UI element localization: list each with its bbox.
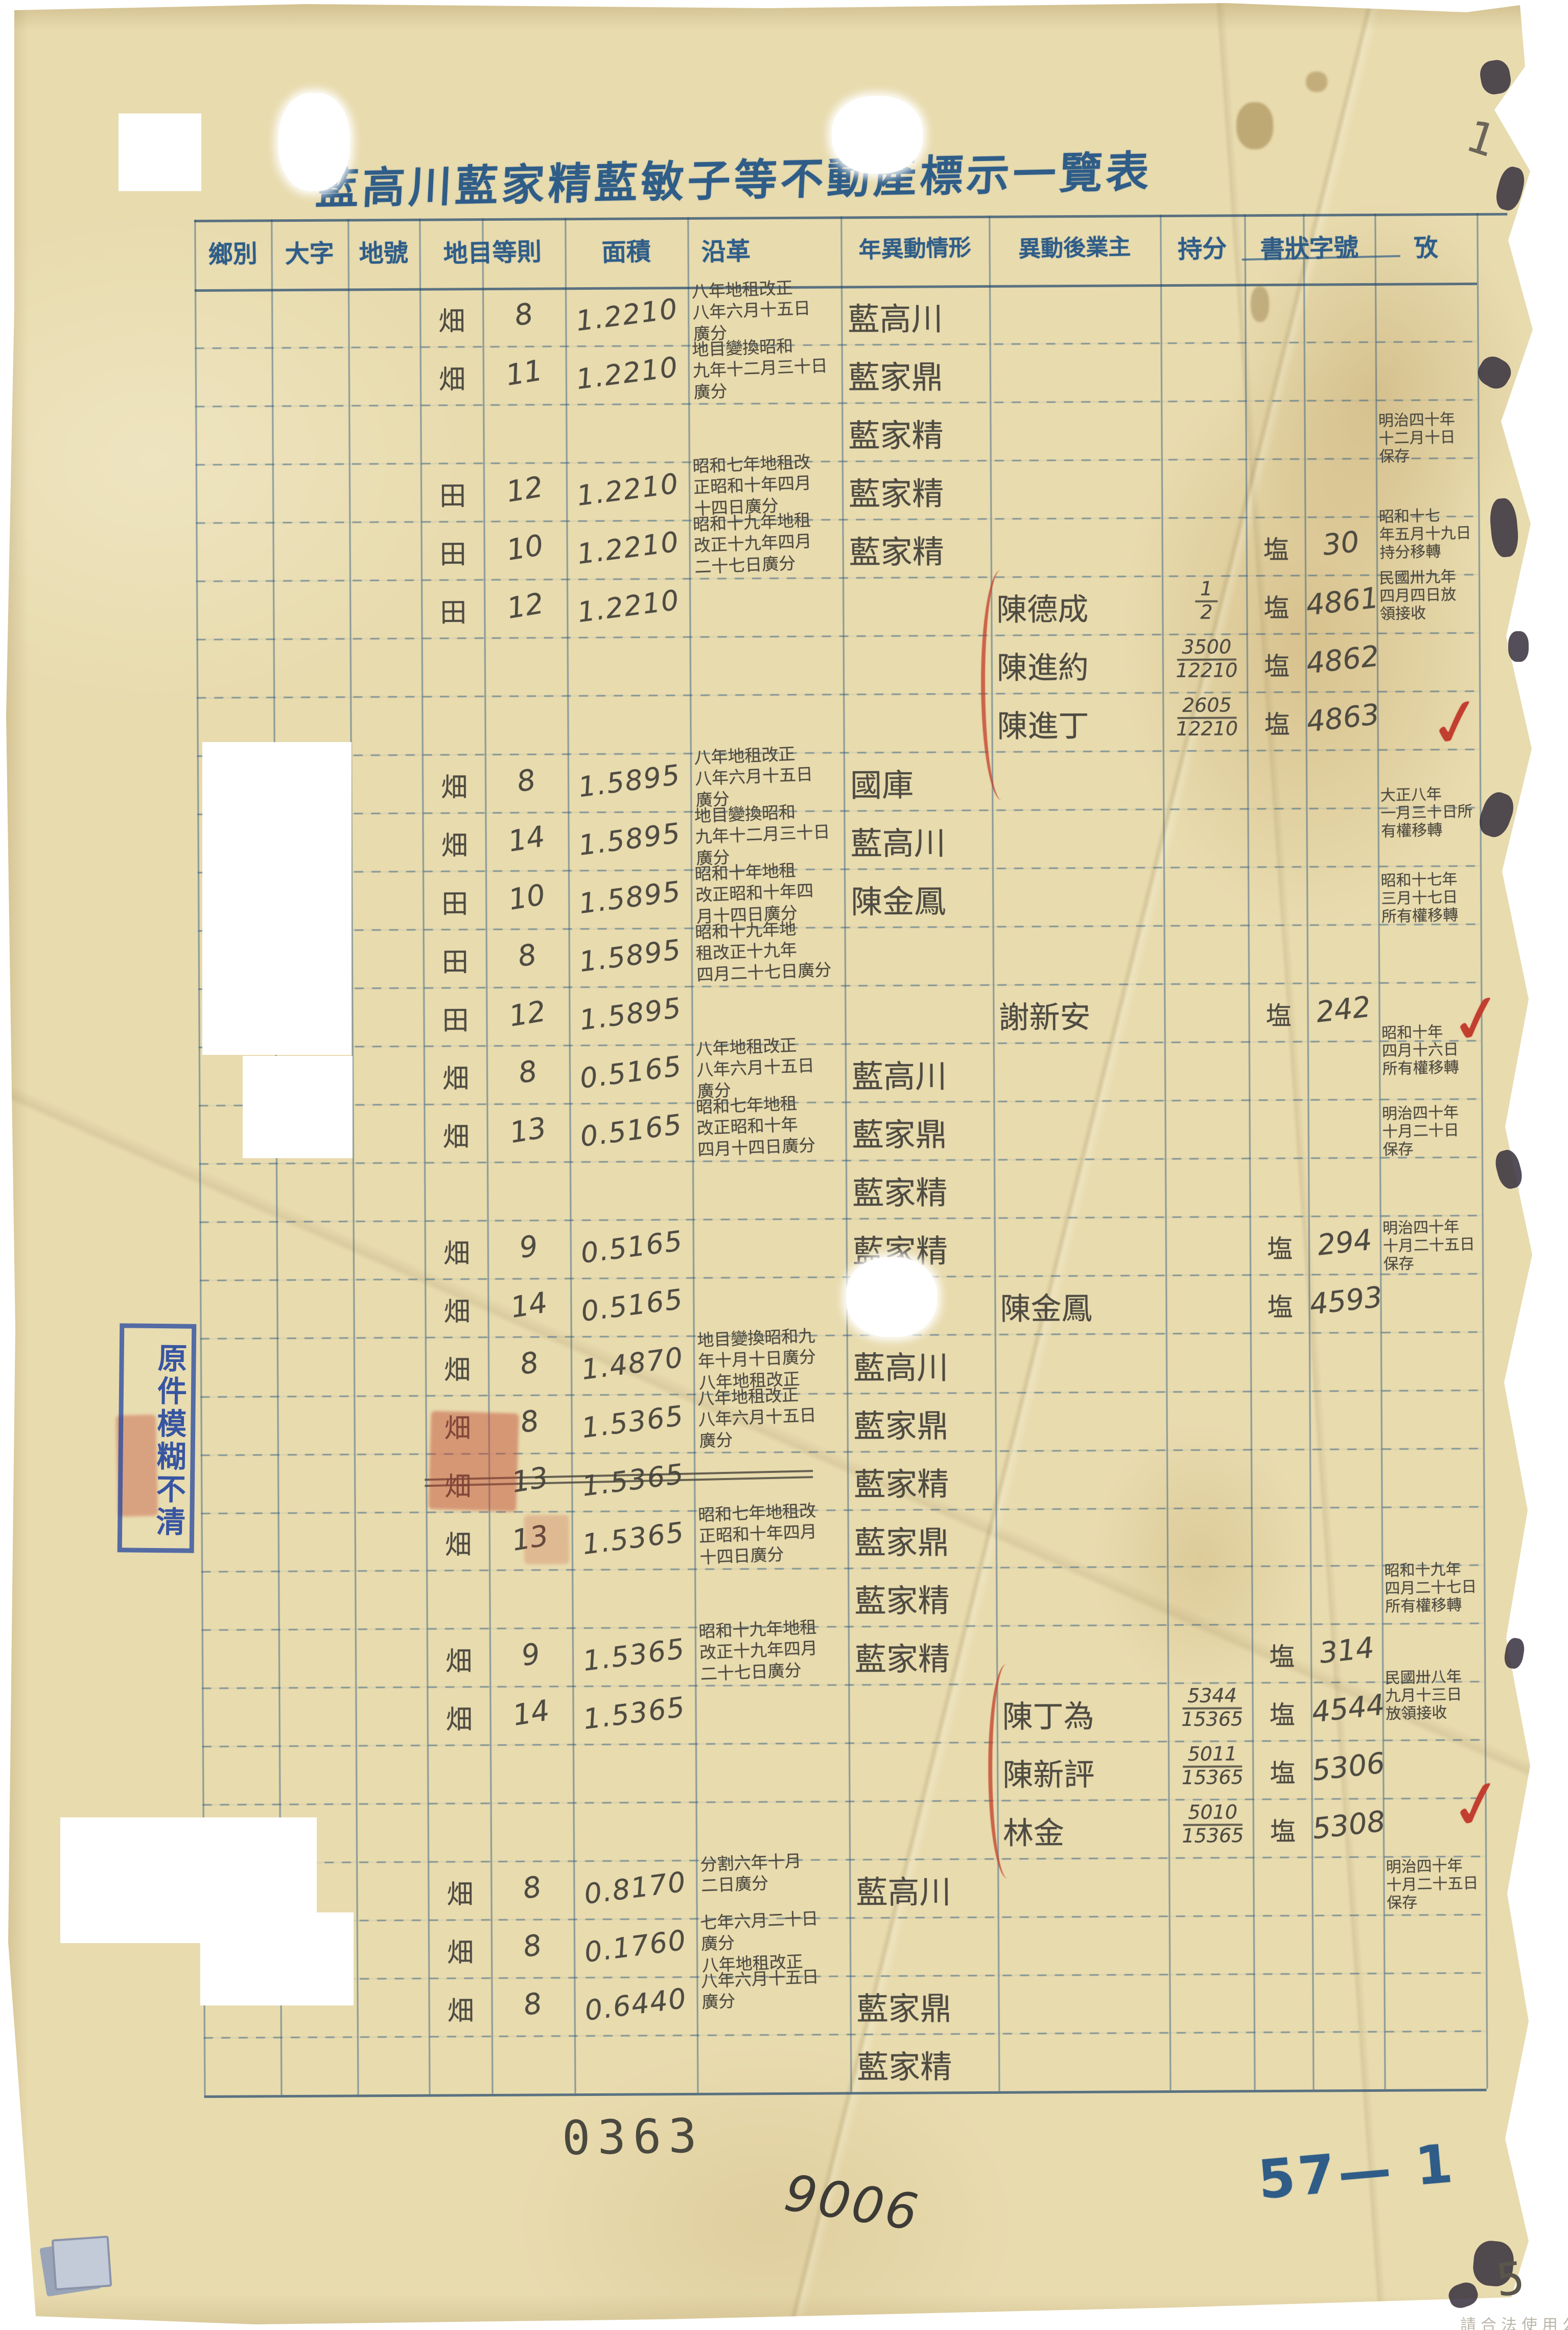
new-owner-name: 林金 — [1003, 1808, 1164, 1853]
area: 1.2210 — [567, 291, 687, 338]
land-type: 田 — [427, 940, 483, 979]
scanned-document-page: 藍高川藍家精藍敏子等不動產標示一覽表 鄉別大字地號地目等則面積沿革年異動情形異動… — [0, 0, 1568, 2330]
cert-prefix: 塩 — [1255, 1636, 1308, 1674]
land-type: 畑 — [429, 1348, 485, 1387]
grid-hline-top — [194, 213, 1507, 222]
land-type: 畑 — [430, 1523, 486, 1562]
owner-name: 藍家精 — [849, 468, 986, 514]
white-redaction — [243, 1056, 353, 1158]
cert-number: 4593 — [1308, 1281, 1382, 1322]
historical-note: 昭和十九年地租 改正十九年四月 二十七日廣分 — [692, 508, 848, 578]
grid-hline — [199, 1157, 1482, 1165]
white-redaction — [200, 1912, 354, 2005]
cert-prefix: 塩 — [1250, 704, 1303, 742]
grade: 8 — [492, 1924, 574, 1969]
area: 1.2210 — [569, 583, 688, 629]
land-type: 田 — [425, 474, 481, 513]
stain — [1251, 286, 1269, 322]
grade: 8 — [486, 933, 569, 979]
column-header: 持分 — [1159, 228, 1245, 266]
area: 0.5165 — [572, 1107, 691, 1154]
land-type: 田 — [425, 533, 481, 571]
land-type: 田 — [425, 591, 481, 630]
stain — [1306, 72, 1327, 92]
land-type: 田 — [427, 882, 483, 921]
grade: 8 — [488, 1341, 571, 1387]
land-type: 田 — [427, 999, 483, 1037]
new-owner-name: 陳進丁 — [997, 701, 1158, 746]
historical-note: 分割六年十月 二日廣分 — [700, 1848, 855, 1896]
owner-name: 藍家鼎 — [848, 351, 985, 398]
area: 1.2210 — [568, 466, 688, 513]
land-type: 畑 — [426, 824, 482, 863]
grid-hline — [195, 399, 1478, 407]
grade: 14 — [485, 817, 568, 862]
grade: 14 — [488, 1283, 570, 1328]
grid-hline — [201, 1448, 1483, 1456]
owner-name: 國庫 — [850, 759, 987, 805]
grid-hline — [196, 574, 1479, 582]
historical-note: 昭和七年地租改 正昭和十年四月 十四日廣分 — [697, 1498, 853, 1568]
historical-note: 昭和十九年地租 改正十九年四月 二十七日廣分 — [698, 1615, 854, 1685]
column-header: 年異動情形 — [835, 228, 994, 265]
page-number: 5 — [1493, 2251, 1527, 2306]
grid-hline — [201, 1564, 1484, 1573]
share-fraction: 501115365 — [1174, 1744, 1251, 1788]
red-seal-stamp — [428, 1411, 519, 1512]
land-type: 畑 — [431, 1640, 487, 1678]
area: 1.5895 — [570, 816, 690, 862]
historical-note: 昭和十九年地 租改正十九年 四月二十七日廣分 — [694, 916, 850, 985]
cert-prefix: 塩 — [1250, 646, 1303, 683]
cert-number: 4862 — [1305, 640, 1378, 681]
new-owner-name: 陳丁為 — [1002, 1691, 1163, 1737]
cert-number: 294 — [1308, 1222, 1382, 1263]
area: 1.5895 — [571, 990, 690, 1037]
grade: 9 — [490, 1632, 572, 1678]
owner-name: 藍家鼎 — [854, 1516, 991, 1563]
remark-note: 明治四十年 十二月十日 保存 — [1378, 410, 1479, 466]
new-owner-name: 陳進約 — [997, 642, 1158, 688]
owner-name: 藍家精 — [854, 1575, 991, 1621]
cert-prefix: 塩 — [1253, 1287, 1306, 1324]
owner-name: 藍家精 — [855, 1633, 992, 1679]
grade: 9 — [488, 1225, 570, 1270]
share-fraction: 501015365 — [1175, 1802, 1251, 1847]
grade: 10 — [484, 525, 566, 571]
grid-hline — [202, 1681, 1484, 1689]
grid-hline — [203, 1797, 1485, 1806]
grade: 10 — [486, 875, 568, 920]
paper-hole — [832, 96, 923, 174]
remark-note: 明治四十年 十月二十日 保存 — [1382, 1103, 1483, 1159]
red-seal-stamp — [524, 1515, 570, 1564]
area: 1.2210 — [568, 350, 687, 396]
grade: 13 — [487, 1108, 569, 1154]
area: 1.2210 — [569, 524, 688, 571]
new-owner-name: 謝新安 — [998, 992, 1160, 1037]
cert-prefix: 塩 — [1256, 1811, 1309, 1849]
grid-hline — [200, 1273, 1482, 1281]
share-fraction: 534415365 — [1174, 1686, 1250, 1730]
area: 1.5895 — [571, 932, 690, 979]
grade: 8 — [491, 1865, 573, 1911]
paper-hole — [846, 1257, 937, 1337]
cert-number: 5308 — [1311, 1805, 1385, 1846]
cert-prefix: 塩 — [1252, 996, 1305, 1033]
land-type: 畑 — [431, 1698, 487, 1737]
area: 1.5895 — [570, 757, 689, 804]
owner-name: 藍高川 — [856, 1866, 993, 1912]
cert-number: 5306 — [1310, 1747, 1384, 1788]
cert-prefix: 塩 — [1255, 1695, 1308, 1732]
grade: 12 — [484, 584, 567, 629]
remark-note: 明治四十年 十月二十五日 保存 — [1386, 1857, 1487, 1912]
area: 1.5365 — [575, 1690, 694, 1736]
grid-hline — [197, 632, 1479, 640]
owner-name: 藍家鼎 — [856, 1982, 993, 2029]
grid-hline — [204, 2031, 1486, 2039]
land-type: 畑 — [429, 1232, 485, 1271]
book-icon — [40, 2234, 116, 2301]
historical-note: 八年六月十五日 廣分 — [700, 1965, 855, 2013]
land-type: 畑 — [432, 1989, 488, 2028]
remark-note: 昭和十七年 三月十七日 所有權移轉 — [1380, 870, 1482, 926]
column-header: 沿革 — [662, 230, 790, 269]
remark-note: 大正八年 一月三十日所 有權移轉 — [1380, 785, 1481, 841]
land-type: 畑 — [428, 1115, 484, 1154]
grade: 12 — [484, 467, 566, 513]
land-type: 畑 — [429, 1290, 485, 1329]
remark-note: 民國卅八年 九月十三日 放領接收 — [1385, 1668, 1486, 1723]
owner-name: 陳金鳳 — [851, 875, 988, 922]
column-header: 異動後業主 — [988, 227, 1160, 264]
historical-note: 地目變換昭和 九年十二月三十日 廣分 — [691, 333, 847, 403]
torn-edge-debris — [1508, 631, 1529, 662]
column-header: 大字 — [271, 233, 348, 270]
historical-note: 八年地租改正 八年六月十五日 廣分 — [697, 1382, 853, 1451]
grid-hline — [200, 1215, 1482, 1223]
area: 1.5895 — [570, 874, 690, 920]
column-header: 地號 — [347, 233, 420, 270]
share-fraction: 260512210 — [1168, 695, 1245, 740]
archive-number-stamp: 0363 — [561, 2109, 704, 2166]
owner-name: 藍家精 — [857, 2041, 994, 2087]
grade: 8 — [492, 1982, 574, 2027]
historical-note: 昭和七年地租 改正昭和十年 四月十四日廣分 — [695, 1091, 851, 1160]
white-redaction — [119, 113, 201, 191]
red-checkmark: ✓ — [1443, 1761, 1511, 1848]
grade: 14 — [490, 1691, 572, 1736]
land-type: 畑 — [424, 358, 480, 397]
new-owner-name: 陳德成 — [996, 584, 1158, 630]
area: 1.5365 — [574, 1515, 693, 1561]
grid-hline — [197, 690, 1479, 699]
land-type: 畑 — [432, 1931, 488, 1970]
grid-hline — [202, 1739, 1485, 1747]
area: 0.6440 — [576, 1981, 696, 2027]
grid-hline-bottom — [204, 2089, 1487, 2098]
grade: 12 — [486, 991, 569, 1037]
area: 0.1760 — [576, 1923, 695, 1969]
owner-name: 藍家精 — [848, 409, 985, 456]
area: 1.4870 — [573, 1340, 692, 1387]
white-redaction — [202, 742, 352, 1055]
grid-hline — [198, 982, 1481, 990]
owner-name: 藍高川 — [853, 1342, 990, 1388]
share-fraction: 350012210 — [1168, 637, 1245, 681]
owner-name: 藍家精 — [849, 526, 986, 572]
share-fraction: 12 — [1168, 579, 1245, 623]
remark-note: 明治四十年 十月二十五日 保存 — [1383, 1218, 1484, 1274]
cert-number: 4544 — [1310, 1689, 1384, 1729]
grade: 8 — [483, 292, 565, 338]
land-type: 畑 — [432, 1873, 488, 1911]
owner-name: 藍家精 — [854, 1458, 991, 1505]
paper-hole — [278, 93, 350, 191]
grade: 8 — [485, 758, 568, 804]
owner-name: 藍高川 — [852, 1050, 989, 1097]
red-brace — [988, 1664, 1016, 1879]
cert-number: 242 — [1306, 989, 1380, 1030]
area: 0.5165 — [572, 1282, 692, 1328]
area: 0.8170 — [575, 1864, 695, 1911]
owner-name: 藍家鼎 — [853, 1400, 990, 1446]
area: 0.5165 — [571, 1049, 691, 1095]
cert-prefix: 塩 — [1250, 529, 1303, 567]
cert-number: 4863 — [1305, 698, 1378, 739]
cert-number: 314 — [1310, 1630, 1384, 1671]
grid-vline — [1303, 214, 1314, 2090]
land-type: 畑 — [426, 766, 482, 804]
owner-name: 藍高川 — [850, 817, 987, 864]
stain — [1236, 102, 1273, 149]
blue-verification-stamp: 原件模糊不清 — [118, 1323, 197, 1553]
grade: 8 — [487, 1050, 569, 1095]
area: 1.5365 — [573, 1398, 693, 1445]
owner-name: 藍家鼎 — [852, 1109, 989, 1155]
new-owner-name: 陳金鳳 — [1000, 1283, 1161, 1329]
cert-number: 4861 — [1304, 582, 1378, 622]
column-header: 攷 — [1374, 226, 1478, 265]
cert-prefix: 塩 — [1256, 1753, 1309, 1790]
column-header: 地目等則 — [418, 231, 567, 270]
column-header: 鄉別 — [194, 233, 272, 270]
remark-note: 昭和十七 年五月十九日 持分移轉 — [1378, 506, 1480, 562]
land-type: 畑 — [424, 299, 480, 338]
cert-prefix: 塩 — [1250, 588, 1303, 625]
area: 0.5165 — [572, 1224, 692, 1270]
remark-note: 昭和十九年 四月二十七日 所有權移轉 — [1384, 1560, 1485, 1616]
owner-name: 藍家精 — [852, 1167, 989, 1213]
land-type: 畑 — [428, 1057, 484, 1096]
image-watermark: 請合法使用公開之影像 — [1460, 2312, 1568, 2330]
grid-vline — [194, 220, 205, 2095]
owner-name: 藍高川 — [848, 293, 985, 339]
area: 1.5365 — [574, 1631, 694, 1678]
cert-number: 30 — [1304, 523, 1377, 564]
grade: 11 — [483, 351, 566, 396]
new-owner-name: 陳新評 — [1002, 1749, 1164, 1795]
cert-prefix: 塩 — [1253, 1229, 1306, 1266]
remark-note: 民國卅九年 四月四日放 領接收 — [1379, 568, 1480, 624]
